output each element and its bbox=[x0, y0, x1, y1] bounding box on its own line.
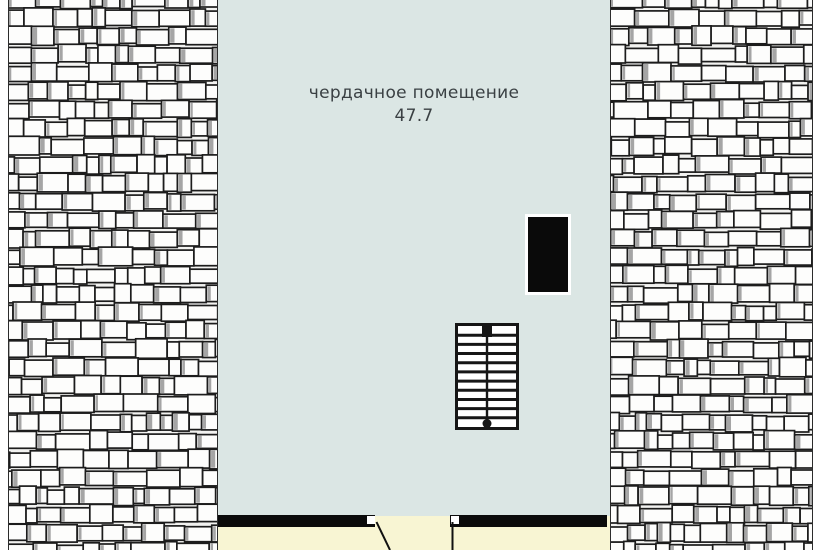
chimney-block bbox=[525, 214, 571, 295]
roof-hatch-right-pattern bbox=[611, 0, 812, 550]
bottom-wall-right bbox=[450, 515, 607, 527]
roof-hatch-left-pattern bbox=[9, 0, 217, 550]
room-area-text: 47.7 bbox=[218, 105, 610, 128]
roof-hatch-right bbox=[610, 0, 813, 550]
floor-plan-canvas: чердачное помещение 47.7 bbox=[0, 0, 825, 550]
roof-hatch-left bbox=[8, 0, 218, 550]
bottom-wall-left bbox=[218, 515, 375, 527]
staircase bbox=[455, 323, 519, 430]
room-label: чердачное помещение 47.7 bbox=[218, 82, 610, 128]
door-leaf-left bbox=[377, 522, 391, 550]
room-name-text: чердачное помещение bbox=[218, 82, 610, 105]
door-swing bbox=[360, 515, 470, 550]
